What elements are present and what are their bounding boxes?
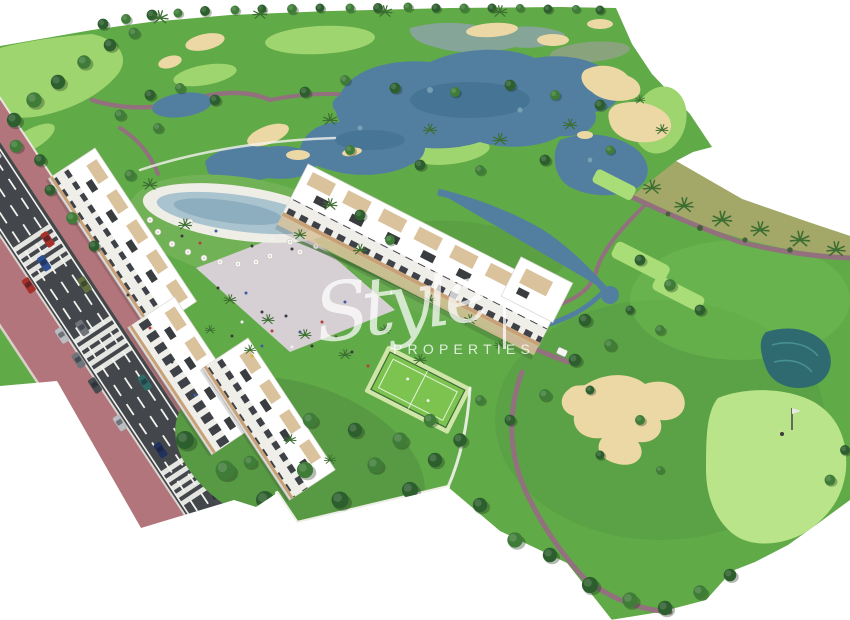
aerial-golf-resort-render — [0, 0, 850, 620]
golfer — [780, 432, 784, 436]
putting-green — [706, 390, 846, 543]
render-canvas: Style PROPERTIES — [0, 0, 850, 620]
